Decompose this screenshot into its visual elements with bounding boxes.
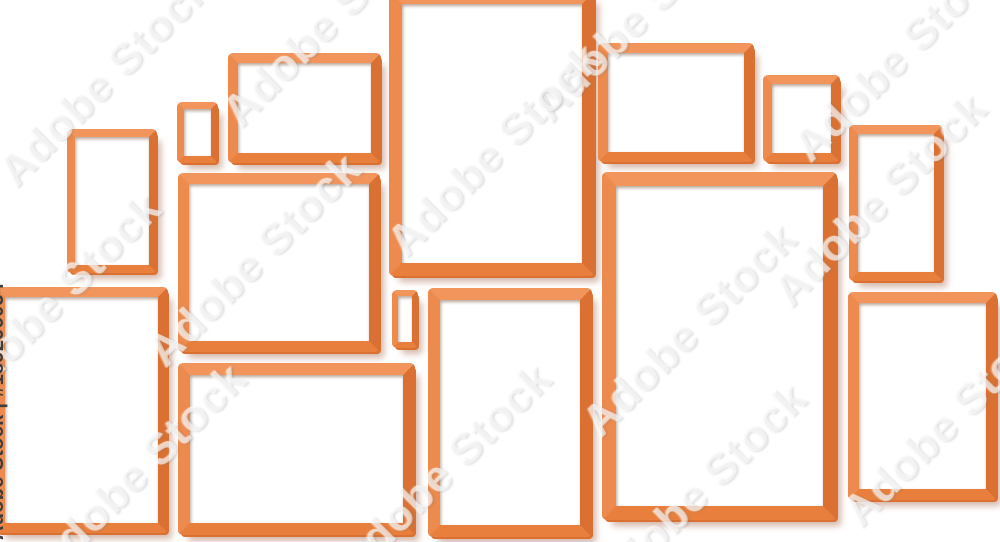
frames-layer <box>0 0 1000 542</box>
stock-photo-canvas: Adobe StockAdobe StockAdobe StockAdobe S… <box>0 0 1000 542</box>
frame-mini-portrait-top <box>177 102 218 163</box>
frame-landscape-bottom-left <box>178 363 415 535</box>
frame-small-square-right <box>763 75 840 162</box>
frame-large-landscape-mid-left <box>178 173 380 352</box>
frame-small-portrait-top-left <box>67 129 157 273</box>
frame-portrait-bottom-center <box>428 288 592 537</box>
watermark-credit-vertical: Adobe Stock | #189296034 <box>0 283 9 540</box>
frame-large-portrait-right-center <box>602 172 837 520</box>
frame-landscape-top <box>228 53 381 163</box>
frame-narrow-mini-bottom-center <box>392 290 418 348</box>
frame-tall-portrait-bottom-left <box>0 287 168 533</box>
frame-landscape-top-right <box>598 43 754 162</box>
frame-tall-portrait-top-center <box>389 0 595 276</box>
frame-portrait-right <box>849 125 943 281</box>
frame-portrait-bottom-right <box>848 292 997 500</box>
